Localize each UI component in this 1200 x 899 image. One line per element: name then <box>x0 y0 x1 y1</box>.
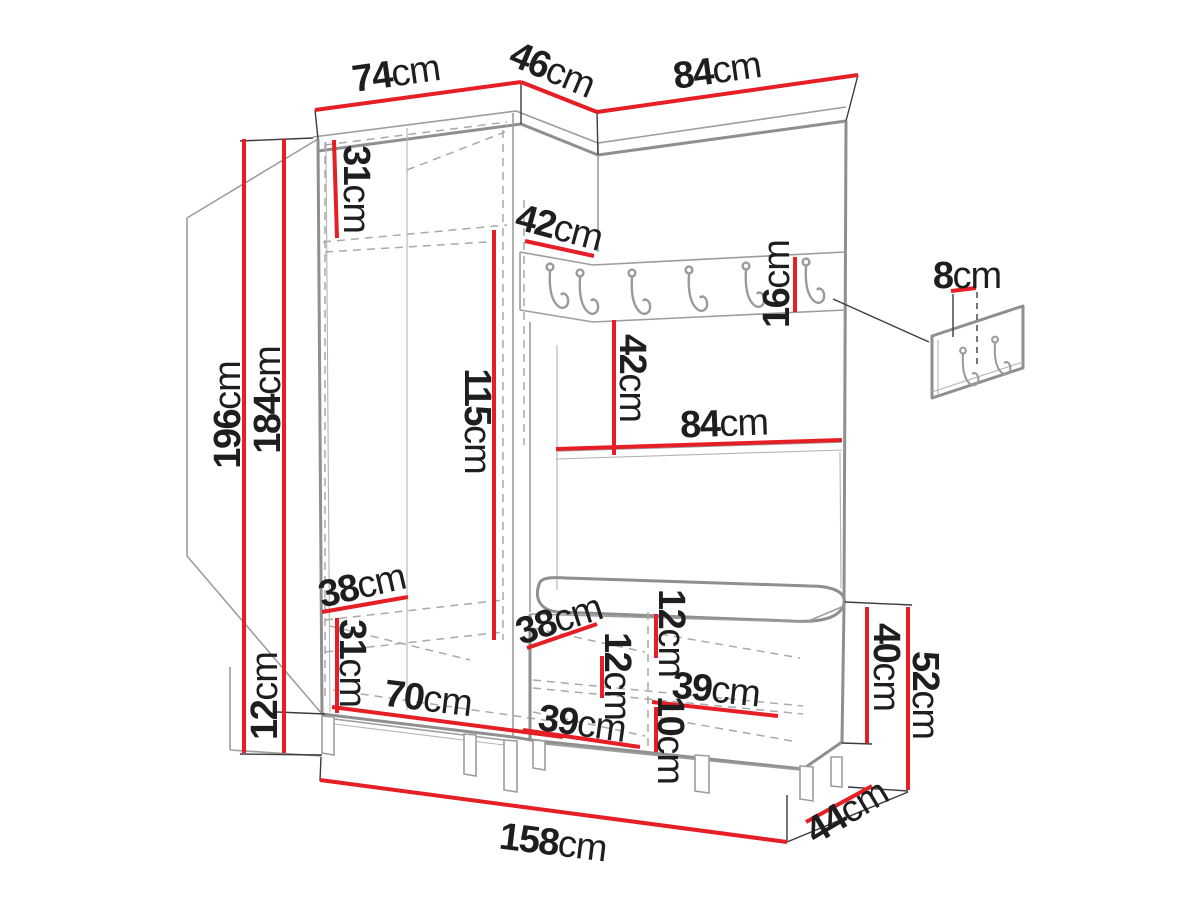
dim-label-total-height: 196cm <box>209 361 247 469</box>
middle-shelf <box>530 322 842 612</box>
dim-label-bench-top-section-height: 12cm <box>652 589 690 677</box>
dim-label-shelf-width: 84cm <box>679 403 768 444</box>
dim-label-bench-body-height: 40cm <box>867 623 905 711</box>
dim-label-bottom-shelf-height: 31cm <box>333 619 371 707</box>
dim-label-wardrobe-inner-width: 70cm <box>382 675 474 723</box>
dim-label-leg-height: 12cm <box>246 652 284 740</box>
dim-label-body-height: 184cm <box>249 346 287 454</box>
dim-label-bench-total-height: 52cm <box>906 651 944 739</box>
diagram-drawing <box>0 0 1200 899</box>
dim-label-top-shelf-height: 31cm <box>337 145 375 233</box>
dim-label-wall-panel-spacing: 8cm <box>933 257 1001 295</box>
dim-label-hanging-space-height: 115cm <box>458 368 496 473</box>
furniture-dimension-diagram: 74cm 46cm 84cm 196cm 184cm 12cm 31cm 42c… <box>0 0 1200 899</box>
wall-panel-leader-line <box>833 299 929 342</box>
dim-label-hook-rail-height: 16cm <box>758 240 796 328</box>
dim-label-rail-to-shelf-height: 42cm <box>613 334 651 422</box>
dim-label-bench-plinth-height: 10cm <box>651 696 689 784</box>
